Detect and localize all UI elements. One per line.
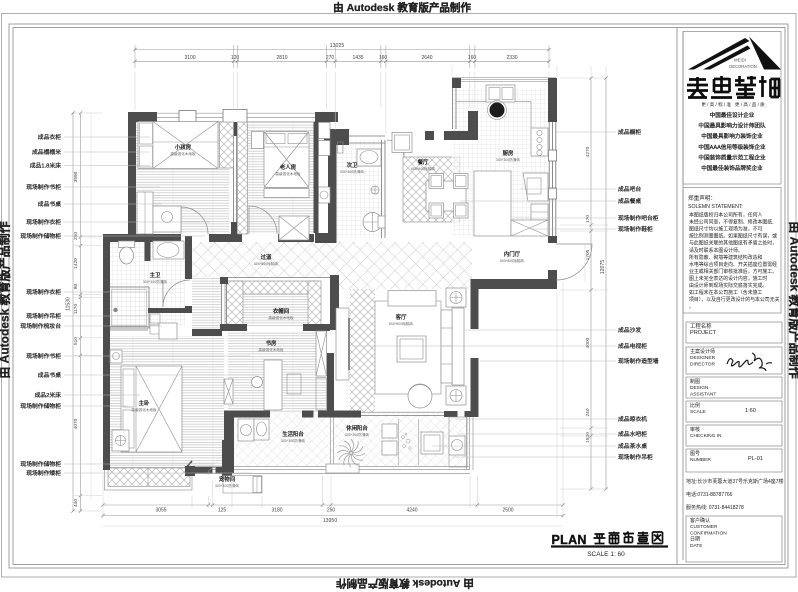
svg-text:DESIGNER: DESIGNER bbox=[690, 355, 716, 361]
svg-text:图纸尺寸均以施工现场为准，不可: 图纸尺寸均以施工现场为准，不可 bbox=[689, 226, 762, 233]
svg-text:图号: 图号 bbox=[690, 451, 700, 457]
svg-text:13950: 13950 bbox=[323, 518, 338, 524]
svg-text:主卧: 主卧 bbox=[139, 399, 150, 407]
svg-text:170: 170 bbox=[585, 215, 591, 223]
svg-text:客厅: 客厅 bbox=[396, 313, 407, 321]
svg-text:现场制作梳妆台: 现场制作梳妆台 bbox=[20, 322, 61, 330]
svg-text:MEIDI: MEIDI bbox=[734, 58, 746, 63]
svg-text:PLAN: PLAN bbox=[552, 533, 587, 547]
svg-text:270: 270 bbox=[326, 55, 335, 61]
svg-text:120: 120 bbox=[231, 55, 240, 61]
svg-text:现场制作衣柜: 现场制作衣柜 bbox=[26, 218, 61, 226]
svg-text:现场制作鞋柜: 现场制作鞋柜 bbox=[618, 225, 653, 233]
svg-text:ASSISTANT: ASSISTANT bbox=[690, 391, 716, 397]
svg-text:成品吧台: 成品吧台 bbox=[618, 185, 641, 193]
svg-text:800*800抛釉砖: 800*800抛釉砖 bbox=[254, 261, 279, 266]
svg-text:成品晾衣机: 成品晾衣机 bbox=[618, 415, 647, 423]
svg-text:1435: 1435 bbox=[352, 55, 363, 61]
svg-text:3055: 3055 bbox=[155, 508, 166, 514]
svg-text:高级强化木地板: 高级强化木地板 bbox=[258, 347, 284, 352]
svg-text:1:60: 1:60 bbox=[745, 408, 756, 414]
svg-text:440: 440 bbox=[73, 499, 79, 507]
svg-text:与此图纸关联的其他图纸有矛盾之处时，: 与此图纸关联的其他图纸有矛盾之处时， bbox=[689, 240, 777, 247]
svg-text:中国AAA信用等级装饰企业: 中国AAA信用等级装饰企业 bbox=[698, 143, 766, 151]
svg-text:4000: 4000 bbox=[585, 337, 591, 348]
svg-text:现场制作衣柜: 现场制作衣柜 bbox=[26, 288, 61, 296]
svg-text:厨房: 厨房 bbox=[503, 149, 514, 157]
svg-text:2810: 2810 bbox=[276, 55, 287, 61]
svg-text:成品电视柜: 成品电视柜 bbox=[618, 342, 647, 350]
svg-text:11530: 11530 bbox=[66, 297, 72, 311]
svg-text:2640: 2640 bbox=[421, 55, 432, 61]
svg-text:成品书桌: 成品书桌 bbox=[38, 371, 61, 379]
svg-text:。: 。 bbox=[689, 305, 694, 310]
svg-text:休闲阳台: 休闲阳台 bbox=[346, 424, 368, 432]
svg-text:800*800抛釉砖: 800*800抛釉砖 bbox=[500, 258, 525, 263]
svg-text:1530: 1530 bbox=[585, 432, 591, 443]
svg-text:日期: 日期 bbox=[690, 537, 700, 543]
svg-text:次卫: 次卫 bbox=[347, 161, 358, 169]
svg-text:主卫: 主卫 bbox=[150, 271, 161, 279]
svg-text:CONFIRMATION: CONFIRMATION bbox=[690, 530, 727, 536]
svg-text:中国最具影响力装饰企业: 中国最具影响力装饰企业 bbox=[701, 132, 763, 140]
svg-text:成品2米床: 成品2米床 bbox=[35, 391, 62, 399]
svg-text:PROJECT: PROJECT bbox=[690, 330, 717, 336]
svg-text:300*300防滑砖: 300*300防滑砖 bbox=[143, 279, 168, 284]
svg-text:2330: 2330 bbox=[506, 55, 517, 61]
svg-text:宠物间: 宠物间 bbox=[219, 475, 235, 483]
svg-text:300*300防滑砖: 300*300防滑砖 bbox=[215, 483, 240, 488]
svg-text:现场制作矮柜: 现场制作矮柜 bbox=[26, 469, 61, 477]
svg-text:书房: 书房 bbox=[266, 339, 277, 347]
svg-text:本图纸版权归本公司所有，任何人: 本图纸版权归本公司所有，任何人 bbox=[689, 212, 762, 219]
svg-text:4240: 4240 bbox=[406, 508, 417, 514]
svg-text:12075: 12075 bbox=[600, 260, 606, 275]
svg-text:现场制作储物柜: 现场制作储物柜 bbox=[20, 402, 61, 410]
svg-text:请及时联系本图设计师。: 请及时联系本图设计师。 bbox=[689, 247, 743, 254]
svg-text:现场制作书柜: 现场制作书柜 bbox=[26, 352, 61, 360]
svg-text:现场制作储物柜: 现场制作储物柜 bbox=[20, 232, 61, 240]
svg-text:PL-01: PL-01 bbox=[748, 456, 763, 462]
svg-text:3590: 3590 bbox=[73, 171, 79, 182]
svg-text:中国最具影响力设计师团队: 中国最具影响力设计师团队 bbox=[698, 122, 766, 130]
svg-text:高级强化木地板: 高级强化木地板 bbox=[131, 407, 157, 412]
svg-text:老人房: 老人房 bbox=[280, 163, 296, 171]
svg-text:800*800抛釉砖: 800*800抛釉砖 bbox=[389, 321, 414, 326]
svg-text:3180: 3180 bbox=[271, 508, 282, 514]
svg-text:3100: 3100 bbox=[184, 55, 195, 61]
svg-text:1705: 1705 bbox=[585, 249, 591, 260]
svg-text:未经公司同意，不得复制、修改本图纸,: 未经公司同意，不得复制、修改本图纸, bbox=[689, 219, 774, 226]
svg-text:成品水吧柜: 成品水吧柜 bbox=[618, 430, 647, 438]
svg-text:衣帽间: 衣帽间 bbox=[273, 307, 289, 315]
svg-text:客户确认: 客户确认 bbox=[690, 517, 710, 524]
svg-text:2500: 2500 bbox=[502, 508, 513, 514]
svg-text:项目），以及自行更改设计的与本公司无关: 项目），以及自行更改设计的与本公司无关 bbox=[689, 296, 780, 303]
svg-text:过道: 过道 bbox=[261, 253, 272, 261]
svg-text:生活阳台: 生活阳台 bbox=[282, 430, 304, 438]
svg-text:中国最佳装饰品牌奖企业: 中国最佳装饰品牌奖企业 bbox=[701, 164, 763, 172]
svg-text:所有隐蔽、砌墙等建筑结构改造和: 所有隐蔽、砌墙等建筑结构改造和 bbox=[689, 254, 762, 261]
svg-text:成品沙发: 成品沙发 bbox=[618, 326, 641, 334]
svg-text:DESIGN: DESIGN bbox=[690, 385, 709, 391]
svg-text:由 Autodesk 教育版产品制作: 由 Autodesk 教育版产品制作 bbox=[333, 1, 471, 14]
svg-text:更 / 高 / 标 / 准 更 / 高 / 品 / 质: 更 / 高 / 标 / 准 更 / 高 / 品 / 质 bbox=[701, 101, 765, 108]
svg-text:高级强化木地板: 高级强化木地板 bbox=[170, 151, 196, 156]
svg-text:成品榻榻米: 成品榻榻米 bbox=[32, 148, 61, 156]
svg-text:SOLEMN STATEMENT:: SOLEMN STATEMENT: bbox=[688, 204, 743, 210]
svg-text:125: 125 bbox=[218, 508, 227, 514]
svg-text:郑重声明：: 郑重声明： bbox=[688, 194, 716, 202]
svg-text:13025: 13025 bbox=[330, 43, 345, 49]
svg-text:由 Autodesk 教育版产品制作: 由 Autodesk 教育版产品制作 bbox=[336, 577, 474, 590]
svg-text:按比例测量图纸。如果图纸尺寸有误，或: 按比例测量图纸。如果图纸尺寸有误，或 bbox=[689, 233, 777, 240]
svg-text:高级强化木地板: 高级强化木地板 bbox=[275, 171, 301, 176]
svg-text:4070: 4070 bbox=[73, 418, 79, 429]
svg-text:制图: 制图 bbox=[690, 378, 700, 385]
svg-text:成品书桌: 成品书桌 bbox=[38, 200, 61, 208]
svg-text:SCALE 1: 60: SCALE 1: 60 bbox=[587, 551, 625, 558]
svg-text:电话:0731-88787766: 电话:0731-88787766 bbox=[686, 491, 733, 498]
svg-text:主案设计师: 主案设计师 bbox=[690, 348, 715, 355]
svg-text:240: 240 bbox=[585, 408, 591, 416]
svg-text:CUSTOMER: CUSTOMER bbox=[690, 524, 718, 530]
svg-text:小孩房: 小孩房 bbox=[175, 143, 191, 151]
svg-text:业主或相关部门审核批准后，方可施工。: 业主或相关部门审核批准后，方可施工。 bbox=[689, 268, 777, 275]
svg-text:CHECKING IN: CHECKING IN bbox=[690, 433, 722, 439]
svg-text:800*800抛釉砖: 800*800抛釉砖 bbox=[411, 166, 436, 171]
svg-text:1170: 1170 bbox=[73, 304, 79, 315]
svg-text:NUMBER: NUMBER bbox=[690, 457, 711, 463]
svg-text:成品衣柜: 成品衣柜 bbox=[38, 133, 61, 141]
svg-text:图上未完全表达的设计内容，施工时: 图上未完全表达的设计内容，施工时 bbox=[689, 275, 767, 282]
svg-text:中国最佳设计企业: 中国最佳设计企业 bbox=[710, 111, 755, 119]
svg-text:成品橱柜: 成品橱柜 bbox=[618, 128, 641, 136]
svg-text:由 Autodesk 教育版产品制作: 由 Autodesk 教育版产品制作 bbox=[0, 221, 12, 378]
svg-text:餐厅: 餐厅 bbox=[418, 158, 429, 166]
svg-text:成品餐桌: 成品餐桌 bbox=[618, 197, 641, 205]
svg-text:80: 80 bbox=[73, 284, 79, 290]
svg-text:如工程未在本公司施工（含未施工: 如工程未在本公司施工（含未施工 bbox=[689, 289, 762, 296]
svg-text:现场制作吧台柜: 现场制作吧台柜 bbox=[618, 214, 659, 222]
svg-text:现场制作储物柜: 现场制作储物柜 bbox=[20, 460, 61, 468]
svg-text:中国装饰质量示范工程企业: 中国装饰质量示范工程企业 bbox=[698, 153, 766, 161]
svg-text:服务热线: 0731-84418278: 服务热线: 0731-84418278 bbox=[686, 504, 744, 511]
svg-text:审核: 审核 bbox=[690, 426, 700, 433]
svg-text:300*300防滑砖: 300*300防滑砖 bbox=[281, 438, 306, 443]
svg-text:高级强化木地板: 高级强化木地板 bbox=[268, 315, 294, 320]
svg-text:DIRECTOR: DIRECTOR bbox=[690, 361, 715, 367]
svg-text:300*300防滑砖: 300*300防滑砖 bbox=[496, 157, 521, 162]
svg-text:DATE: DATE bbox=[690, 543, 702, 549]
svg-text:现场制作书柜: 现场制作书柜 bbox=[26, 183, 61, 191]
svg-text:4270: 4270 bbox=[585, 146, 591, 157]
svg-text:地址:长沙市芙蓉大道37号乐克斯广场4座7楼: 地址:长沙市芙蓉大道37号乐克斯广场4座7楼 bbox=[686, 478, 784, 485]
svg-text:水电等综合项目走向、开关插座位置需经: 水电等综合项目走向、开关插座位置需经 bbox=[689, 261, 777, 268]
svg-text:成品茶水桌: 成品茶水桌 bbox=[618, 442, 647, 450]
svg-text:SCALE: SCALE bbox=[690, 409, 706, 415]
svg-text:内门厅: 内门厅 bbox=[504, 250, 521, 258]
svg-text:比例: 比例 bbox=[690, 402, 700, 409]
svg-text:1420: 1420 bbox=[73, 258, 79, 269]
svg-text:250: 250 bbox=[327, 508, 336, 514]
svg-text:300*300防滑砖: 300*300防滑砖 bbox=[340, 169, 365, 174]
svg-text:由 Autodesk 教育版产品制作: 由 Autodesk 教育版产品制作 bbox=[788, 221, 798, 378]
svg-text:现场制作吊柜: 现场制作吊柜 bbox=[26, 312, 61, 320]
svg-text:现场制作吊柜: 现场制作吊柜 bbox=[618, 453, 653, 461]
svg-text:DECORATION: DECORATION bbox=[729, 64, 757, 69]
svg-text:成品1.8米床: 成品1.8米床 bbox=[30, 162, 61, 170]
svg-text:由设计师到现场实际交底落实完成。: 由设计师到现场实际交底落实完成。 bbox=[689, 282, 767, 289]
svg-text:工程名称: 工程名称 bbox=[690, 322, 712, 330]
svg-text:现场制作造型墙: 现场制作造型墙 bbox=[618, 357, 659, 365]
svg-text:300*300防滑砖: 300*300防滑砖 bbox=[345, 432, 370, 437]
